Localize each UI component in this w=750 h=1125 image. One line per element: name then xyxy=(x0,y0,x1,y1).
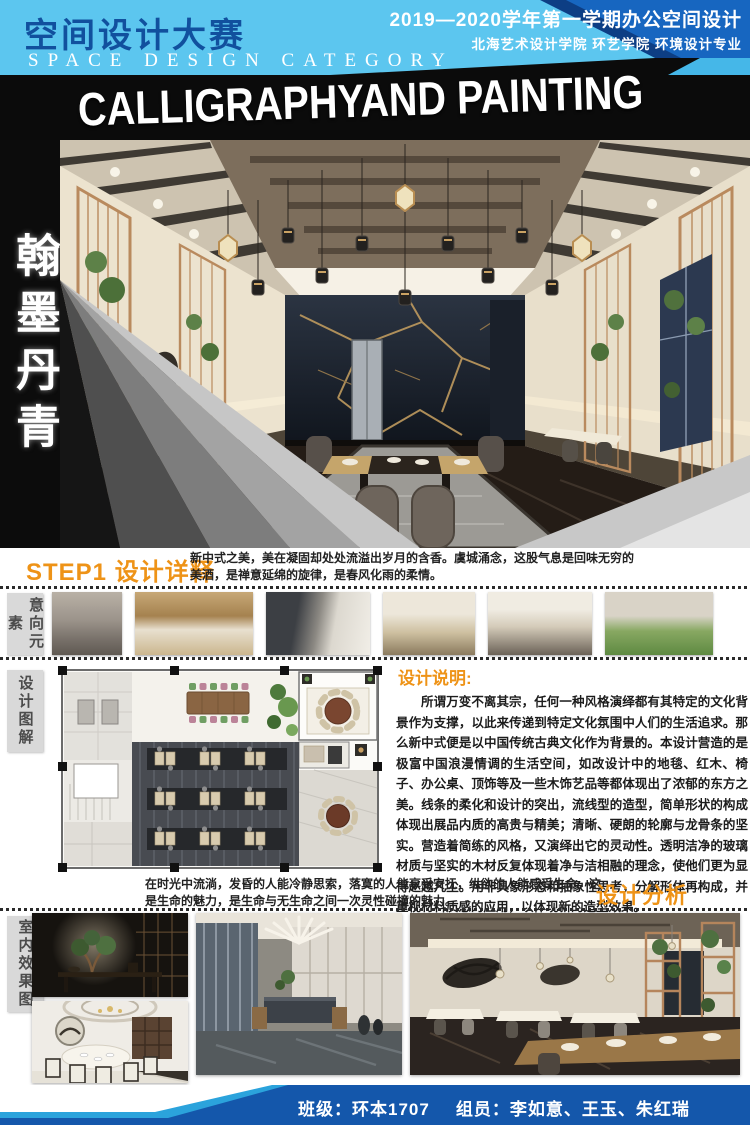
reference-photo-office-window xyxy=(266,592,370,655)
hero-section: 翰墨丹青 xyxy=(0,140,750,548)
floor-plan xyxy=(52,662,390,878)
school-line: 北海艺术设计学院 环艺学院 环境设计专业 xyxy=(471,33,742,53)
poster-page: 空间设计大赛 SPACE DESIGN CATEGORY 2019—2020学年… xyxy=(0,0,750,1125)
dotted-divider xyxy=(0,586,750,589)
reference-photo-lounge xyxy=(383,592,475,655)
hero-vertical-title: 翰墨丹青 xyxy=(7,232,67,460)
sidebar-label-diagram: 设计图解 xyxy=(7,670,43,752)
reference-photo-green-lounge xyxy=(605,592,713,655)
design-note-heading: 设计说明: xyxy=(398,664,472,689)
class-info: 班级：环本1707 xyxy=(298,1100,430,1119)
render-photo-round-table-room xyxy=(32,1001,188,1083)
dotted-divider xyxy=(0,908,750,911)
hero-render-image xyxy=(60,140,750,548)
reference-photo-strip xyxy=(52,592,746,655)
dotted-divider xyxy=(0,657,750,660)
render-photo-tea-room xyxy=(196,913,402,1075)
term-line: 2019—2020学年第一学期办公空间设计 xyxy=(389,5,742,32)
team-members: 组员：李如意、王玉、朱红瑞 xyxy=(456,1100,690,1119)
sidebar-label-intent: 意向元素 xyxy=(7,593,43,655)
reference-photo-corridor xyxy=(52,592,122,655)
step1-intro-text: 新中式之美，美在凝固却处处流溢出岁月的含香。虞城涌念，这股气息是回味无穷的美酒，… xyxy=(190,550,642,584)
footer-bar: 班级：环本1707组员：李如意、王玉、朱红瑞 xyxy=(0,1085,750,1125)
contest-title-en: SPACE DESIGN CATEGORY xyxy=(28,50,454,72)
render-photo-restaurant-mural xyxy=(410,913,740,1075)
reference-photo-wood-slat-hall xyxy=(135,592,253,655)
step1-heading: STEP1 设计详释 xyxy=(26,552,215,587)
reference-photo-meeting-room xyxy=(488,592,592,655)
footer-credits: 班级：环本1707组员：李如意、王玉、朱红瑞 xyxy=(298,1095,716,1120)
render-photo-bonsai-console xyxy=(32,913,188,997)
step2-intro-text: 在时光中流淌，发昏的人能冷静思索，落寞的人能享受安抚，纵欲的人能感受生命。这是生… xyxy=(145,876,603,910)
